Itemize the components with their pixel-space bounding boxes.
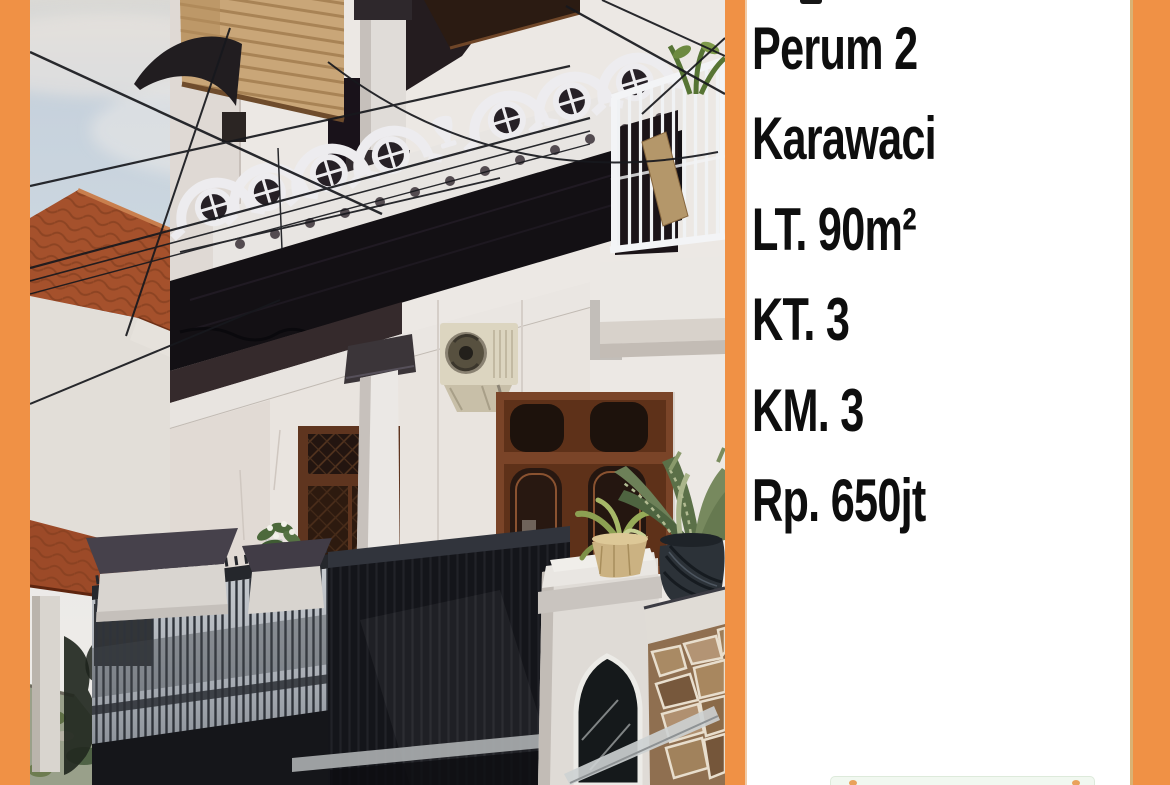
listing-line-location-2: Karawaci [745,94,1130,185]
house-illustration [30,0,725,785]
price-text: Rp. 650jt [752,466,926,535]
listing-panel: Perum 2 Karawaci LT. 90m² KT. 3 KM. 3 Rp… [745,0,1133,785]
bathrooms-text: KM. 3 [752,376,864,445]
watermark-bar [830,776,1095,785]
fence-pillar-left [86,528,238,622]
property-photo [30,0,725,785]
cropped-text-artifact [800,0,822,4]
land-area-text: LT. 90m² [752,195,916,264]
listing-line-price: Rp. 650jt [745,456,1130,547]
listing-line-location-1: Perum 2 [745,3,1130,94]
flyer-canvas: Perum 2 Karawaci LT. 90m² KT. 3 KM. 3 Rp… [0,0,1170,785]
solid-gate [292,526,570,785]
location-name-text: Perum 2 [752,14,917,83]
district-name-text: Karawaci [752,104,936,173]
listing-line-land-area: LT. 90m² [745,184,1130,275]
watermark-dot [1072,780,1080,785]
watermark-dot [849,780,857,785]
bedrooms-text: KT. 3 [752,285,849,354]
gate-pillar-stone [644,588,725,785]
listing-line-bedrooms: KT. 3 [745,275,1130,366]
listing-line-bathrooms: KM. 3 [745,365,1130,456]
panel-edge-shade [745,0,747,785]
